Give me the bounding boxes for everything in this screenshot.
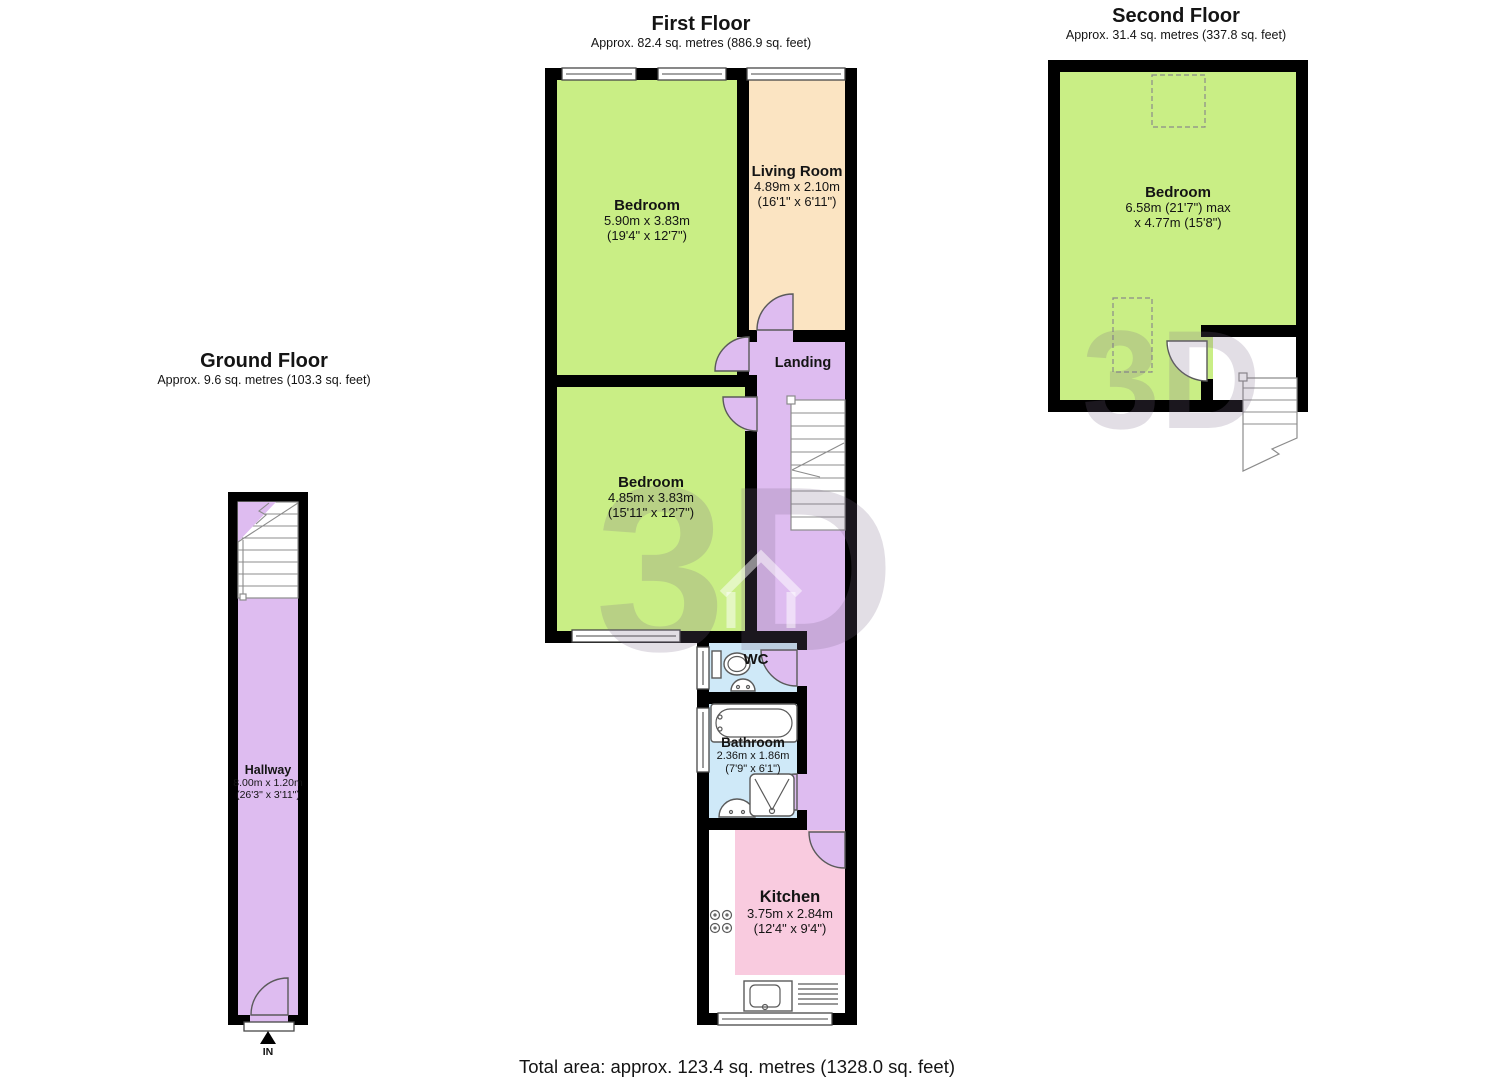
room-name: Kitchen <box>747 888 833 907</box>
room-name: Bedroom <box>604 197 690 214</box>
bedroom1-label: Bedroom 5.90m x 3.83m (19'4" x 12'7") <box>604 197 690 243</box>
room-name: Hallway <box>233 763 302 777</box>
room-dims-imperial: x 4.77m (15'8") <box>1125 216 1230 231</box>
room-dims-imperial: (12'4" x 9'4") <box>747 922 833 937</box>
entrance-arrow-icon <box>260 1031 276 1044</box>
first-floor-title: First Floor <box>591 13 811 36</box>
floorplan-canvas: 3D 3D Ground Floor Approx. 9.6 sq. metre… <box>0 0 1485 1080</box>
room-dims-imperial: (26'3" x 3'11") <box>233 789 302 801</box>
second-bedroom-label: Bedroom 6.58m (21'7") max x 4.77m (15'8"… <box>1125 184 1230 230</box>
bedroom2-label: Bedroom 4.85m x 3.83m (15'11" x 12'7") <box>608 474 694 520</box>
room-name: Living Room <box>747 163 847 180</box>
entrance-in-label: IN <box>263 1046 274 1058</box>
bathroom-label: Bathroom 2.36m x 1.86m (7'9" x 6'1") <box>717 735 790 775</box>
kitchen-label: Kitchen 3.75m x 2.84m (12'4" x 9'4") <box>747 888 833 936</box>
room-dims-metric: 8.00m x 1.20m <box>233 777 302 789</box>
ground-stairs <box>238 502 298 600</box>
second-floor-title: Second Floor <box>1066 5 1286 28</box>
hallway-label: Hallway 8.00m x 1.20m (26'3" x 3'11") <box>233 763 302 801</box>
second-floor-subtitle: Approx. 31.4 sq. metres (337.8 sq. feet) <box>1066 28 1286 43</box>
watermark-text-small: 3D <box>1082 301 1261 458</box>
room-dims-metric: 4.89m x 2.10m <box>747 180 847 195</box>
first-floor-subtitle: Approx. 82.4 sq. metres (886.9 sq. feet) <box>591 36 811 51</box>
room-dims-metric: 6.58m (21'7") max <box>1125 201 1230 216</box>
room-name: Bedroom <box>608 474 694 491</box>
living-room-label: Living Room 4.89m x 2.10m (16'1" x 6'11"… <box>747 163 847 209</box>
room-dims-imperial: (16'1" x 6'11") <box>747 195 847 210</box>
room-dims-imperial: (19'4" x 12'7") <box>604 229 690 244</box>
room-name: Landing <box>775 355 831 371</box>
room-name: Bathroom <box>717 735 790 750</box>
first-floor-title-block: First Floor Approx. 82.4 sq. metres (886… <box>591 13 811 51</box>
room-dims-metric: 4.85m x 3.83m <box>608 491 694 506</box>
room-dims-imperial: (15'11" x 12'7") <box>608 506 694 521</box>
second-floor-title-block: Second Floor Approx. 31.4 sq. metres (33… <box>1066 5 1286 43</box>
wc-label: WC <box>744 651 769 668</box>
ground-floor-title: Ground Floor <box>157 350 370 373</box>
floorplan-graphics: 3D 3D <box>0 0 1485 1080</box>
room-dims-imperial: (7'9" x 6'1") <box>717 763 790 776</box>
room-dims-metric: 3.75m x 2.84m <box>747 907 833 922</box>
room-name: WC <box>744 651 769 668</box>
ground-floor-title-block: Ground Floor Approx. 9.6 sq. metres (103… <box>157 350 370 388</box>
room-dims-metric: 5.90m x 3.83m <box>604 214 690 229</box>
total-area-text: Total area: approx. 123.4 sq. metres (13… <box>519 1056 955 1078</box>
ground-floor-subtitle: Approx. 9.6 sq. metres (103.3 sq. feet) <box>157 373 370 388</box>
room-dims-metric: 2.36m x 1.86m <box>717 750 790 763</box>
landing-label: Landing <box>775 355 831 371</box>
room-name: Bedroom <box>1125 184 1230 201</box>
